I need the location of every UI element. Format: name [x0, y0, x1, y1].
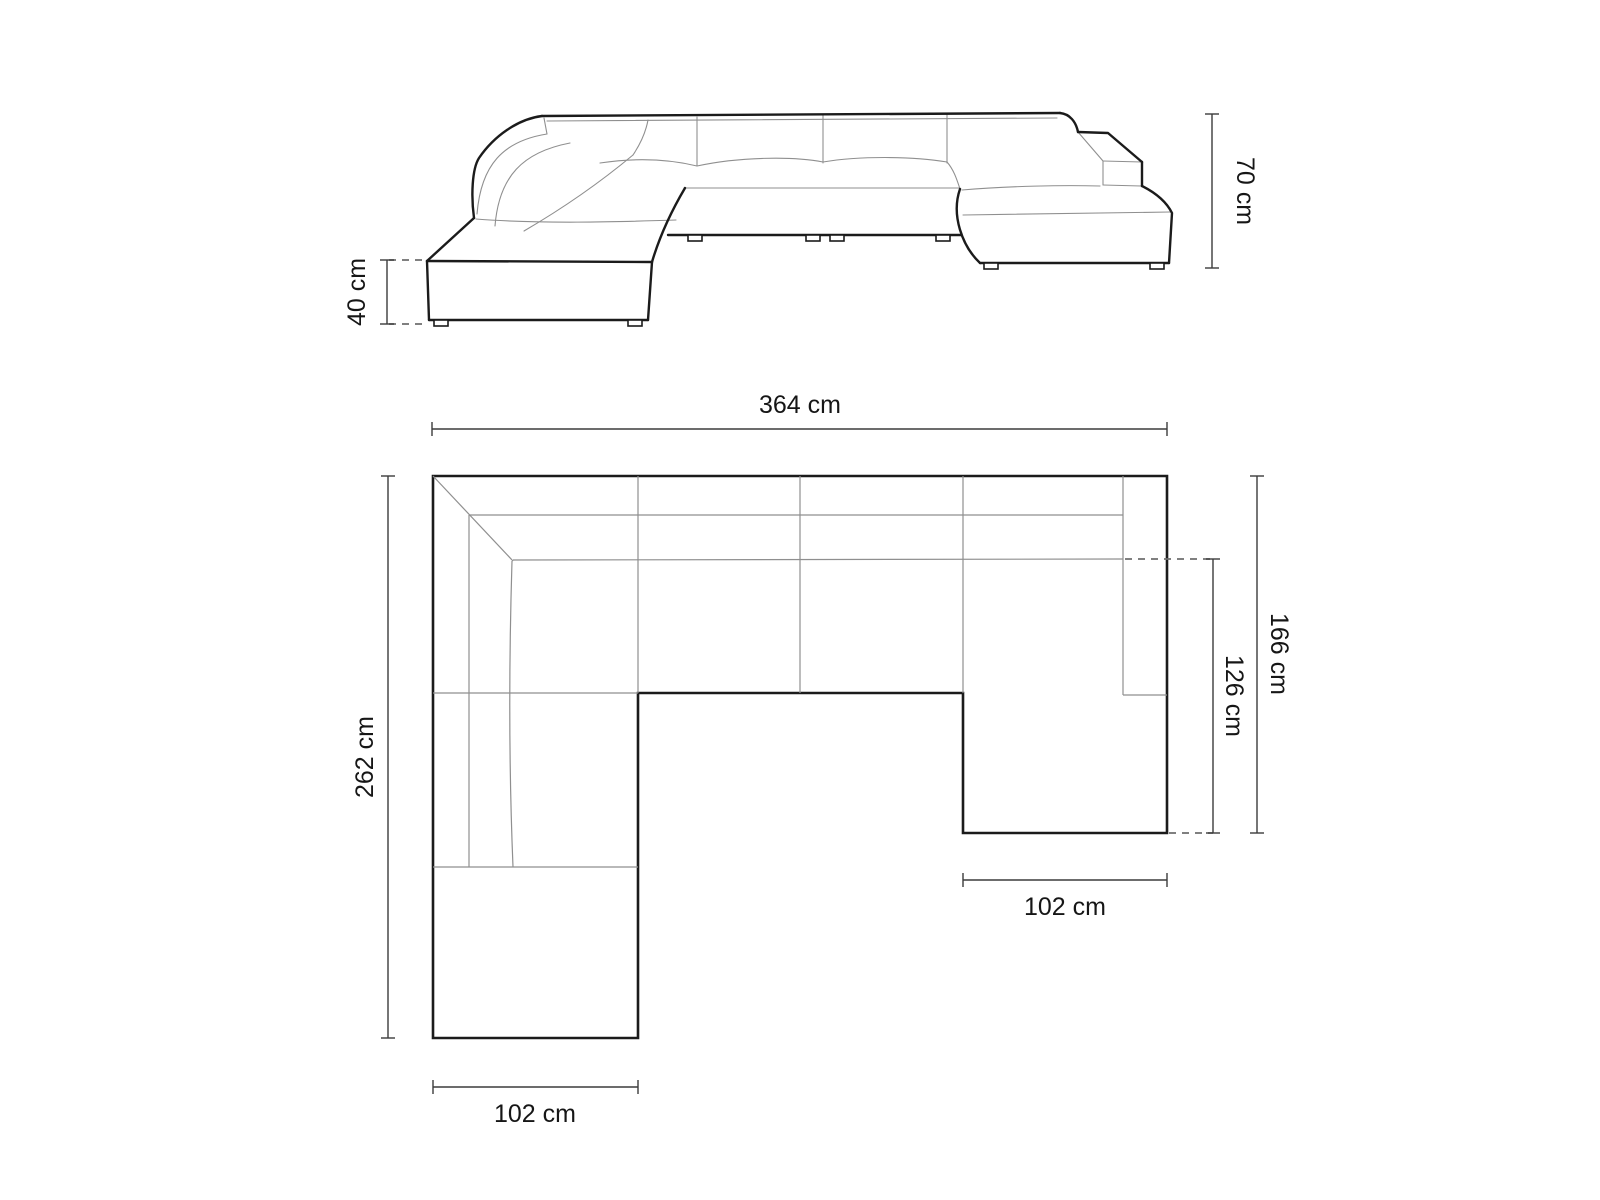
foot — [688, 235, 702, 241]
chaise-back-line — [962, 186, 1100, 190]
foot — [434, 320, 448, 326]
arm-inner-edge — [1103, 161, 1142, 162]
chaise-front-top-line — [963, 212, 1170, 215]
dimension-left-depth: 262 cm — [351, 476, 395, 1038]
right-chaise-left-edge — [957, 189, 980, 263]
side-view-seam-lines — [476, 114, 1170, 231]
side-view-outline — [427, 113, 1172, 320]
sofa-feet — [434, 235, 1164, 326]
foot — [806, 235, 820, 241]
dimension-right-depth: 166 cm — [1250, 476, 1293, 833]
foot — [1150, 263, 1164, 269]
foot — [936, 235, 950, 241]
ottoman-front-left-edge — [427, 261, 429, 320]
ottoman-back-line — [476, 219, 676, 222]
dim-label-left-depth: 262 cm — [351, 716, 379, 798]
dim-label-chaise-right-width: 102 cm — [1024, 893, 1106, 921]
dimension-total-width: 364 cm — [432, 391, 1167, 436]
seat-cushion-top-line — [600, 158, 947, 167]
dimension-total-height: 70 cm — [1205, 114, 1259, 268]
foot — [628, 320, 642, 326]
dim-label-right-depth: 166 cm — [1265, 613, 1293, 695]
arm-top-edge — [1078, 132, 1142, 162]
foot — [984, 263, 998, 269]
dim-label-total-height: 70 cm — [1231, 157, 1259, 225]
back-top-inner-line — [547, 118, 1057, 121]
ottoman-right-edge — [648, 262, 652, 320]
dim-label-total-width: 364 cm — [759, 391, 841, 419]
ottoman-front-top-edge — [427, 261, 652, 262]
back-right-corner — [1060, 113, 1078, 132]
back-top-edge — [542, 113, 1060, 116]
dimension-chaise-left-width: 102 cm — [433, 1080, 638, 1128]
corner-pillow-seam — [633, 120, 648, 155]
left-chaise-left-edge — [427, 218, 474, 261]
dimension-right-inner-depth: 126 cm — [1206, 559, 1248, 833]
dim-label-right-inner-depth: 126 cm — [1220, 655, 1248, 737]
right-chaise-right-edge — [1142, 186, 1172, 263]
back-left-corner — [472, 116, 542, 218]
arm-inner-edge — [1103, 185, 1141, 186]
dim-label-seat-height: 40 cm — [343, 258, 371, 326]
dim-label-chaise-left-width: 102 cm — [494, 1100, 576, 1128]
sofa-dimension-diagram: 40 cm 70 cm — [0, 0, 1600, 1200]
seat-cushion-corner-line — [947, 162, 960, 189]
arm-inner-edge — [1078, 132, 1103, 161]
foot — [830, 235, 844, 241]
dimension-chaise-right-width: 102 cm — [963, 873, 1167, 921]
corner-pillow-curve — [495, 143, 570, 226]
dimension-seat-height: 40 cm — [343, 258, 428, 326]
seat-corner-diagonal — [652, 188, 685, 262]
pillow-top-seam — [544, 118, 547, 134]
side-view-drawing — [427, 113, 1172, 326]
plan-view-drawing — [433, 476, 1213, 1038]
diagram-svg: 40 cm 70 cm — [0, 0, 1600, 1200]
corner-pillow-sweep — [524, 155, 633, 231]
